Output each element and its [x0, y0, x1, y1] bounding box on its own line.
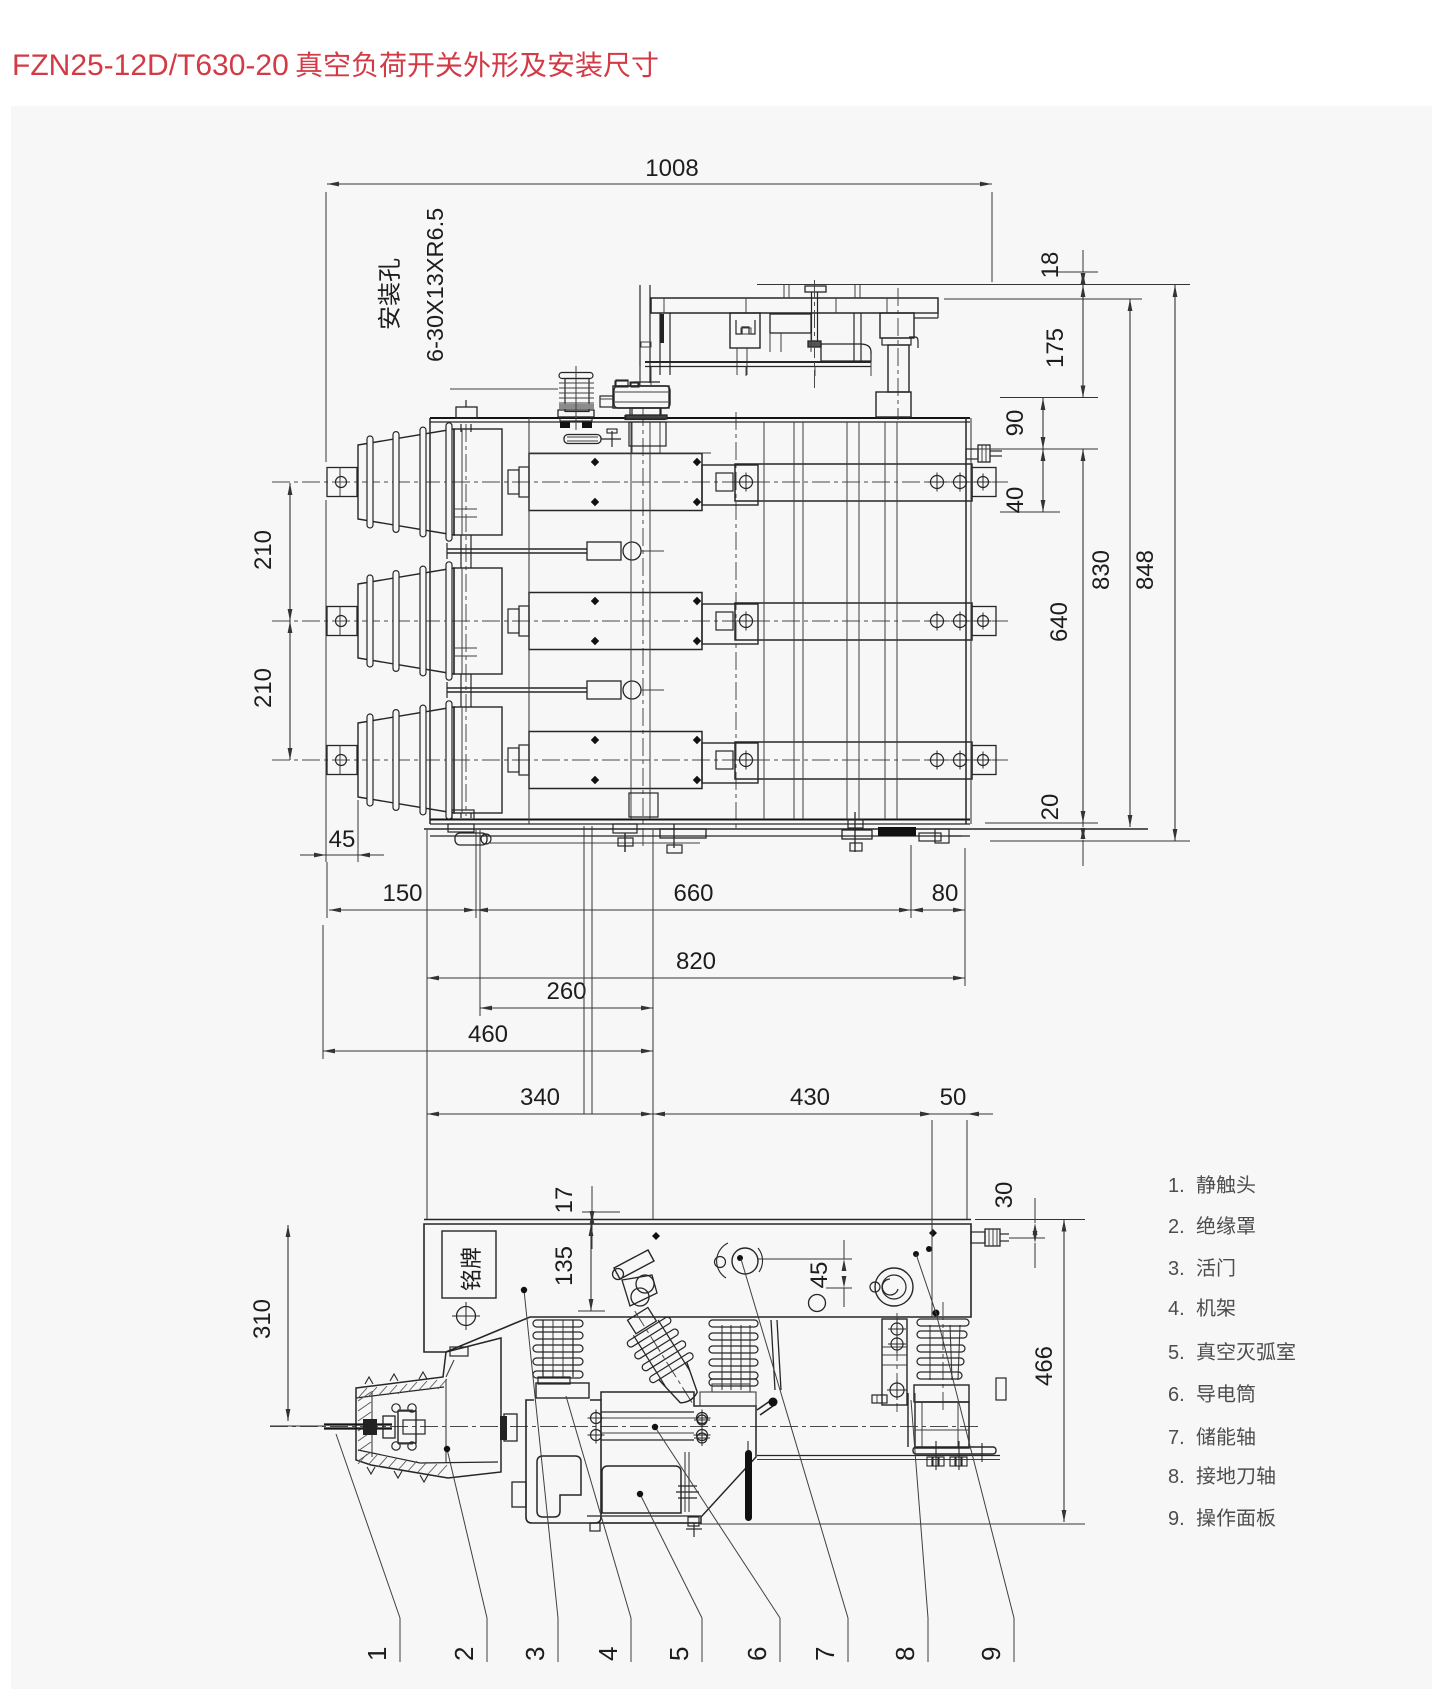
svg-text:1.: 1. [1168, 1175, 1185, 1197]
svg-text:660: 660 [673, 880, 713, 907]
svg-text:430: 430 [790, 1084, 830, 1111]
svg-text:2.: 2. [1168, 1216, 1185, 1238]
svg-text:5: 5 [664, 1647, 694, 1661]
svg-text:1008: 1008 [645, 155, 698, 182]
svg-text:45: 45 [806, 1262, 833, 1289]
svg-text:8: 8 [890, 1647, 920, 1661]
svg-text:6.: 6. [1168, 1384, 1185, 1406]
svg-text:6: 6 [742, 1647, 772, 1661]
svg-text:460: 460 [468, 1021, 508, 1048]
svg-text:150: 150 [382, 880, 422, 907]
svg-text:17: 17 [551, 1187, 578, 1214]
svg-text:30: 30 [991, 1182, 1018, 1209]
svg-text:340: 340 [520, 1084, 560, 1111]
svg-text:830: 830 [1088, 550, 1115, 590]
svg-text:3.: 3. [1168, 1258, 1185, 1280]
svg-text:210: 210 [250, 668, 277, 708]
svg-text:FZN25-12D/T630-20: FZN25-12D/T630-20 [12, 49, 289, 82]
svg-text:175: 175 [1042, 328, 1069, 368]
svg-text:7.: 7. [1168, 1427, 1185, 1449]
svg-text:820: 820 [676, 948, 716, 975]
svg-text:90: 90 [1002, 410, 1029, 437]
svg-text:310: 310 [249, 1299, 276, 1339]
svg-text:80: 80 [932, 880, 959, 907]
svg-text:9: 9 [976, 1647, 1006, 1661]
svg-text:50: 50 [940, 1084, 967, 1111]
svg-text:4: 4 [593, 1647, 623, 1661]
svg-text:9.: 9. [1168, 1508, 1185, 1530]
svg-text:7: 7 [810, 1647, 840, 1661]
svg-text:40: 40 [1002, 487, 1029, 514]
svg-text:20: 20 [1037, 794, 1064, 821]
svg-text:466: 466 [1031, 1346, 1058, 1386]
svg-text:2: 2 [449, 1647, 479, 1661]
svg-text:5.: 5. [1168, 1342, 1185, 1364]
svg-text:1: 1 [362, 1647, 392, 1661]
svg-text:4.: 4. [1168, 1298, 1185, 1320]
svg-text:3: 3 [520, 1647, 550, 1661]
svg-text:45: 45 [329, 826, 356, 853]
svg-text:8.: 8. [1168, 1466, 1185, 1488]
svg-text:260: 260 [546, 978, 586, 1005]
svg-text:135: 135 [551, 1246, 578, 1286]
svg-text:640: 640 [1046, 602, 1073, 642]
svg-text:848: 848 [1132, 550, 1159, 590]
svg-text:210: 210 [250, 530, 277, 570]
svg-text:18: 18 [1037, 252, 1064, 279]
svg-text:6-30X13XR6.5: 6-30X13XR6.5 [422, 208, 448, 362]
